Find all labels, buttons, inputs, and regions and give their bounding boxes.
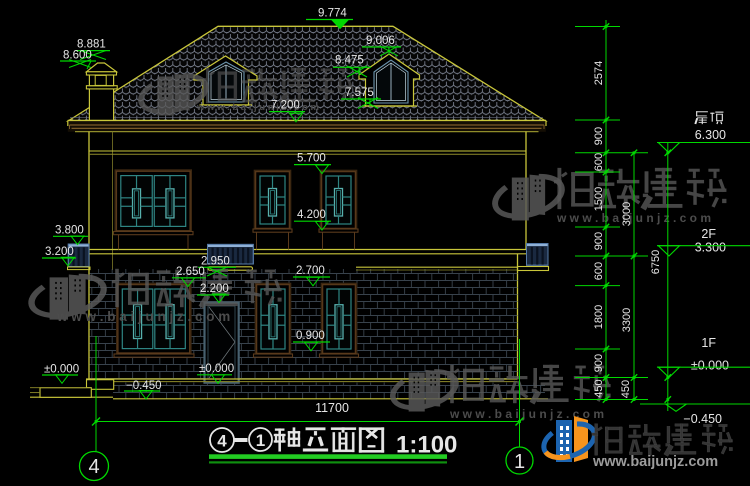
svg-text:9.006: 9.006 (366, 35, 395, 47)
svg-text:3300: 3300 (621, 308, 633, 332)
svg-text:6750: 6750 (650, 250, 662, 274)
svg-text:−0.450: −0.450 (683, 412, 722, 426)
svg-text:4: 4 (217, 432, 227, 451)
svg-text:w w w . b a i j u n j z . c o: w w w . b a i j u n j z . c o m (56, 309, 230, 324)
svg-text:5.700: 5.700 (297, 153, 326, 165)
svg-text:1500: 1500 (593, 187, 605, 211)
svg-text:1F: 1F (701, 336, 716, 350)
svg-text:6.300: 6.300 (695, 128, 726, 142)
svg-text:450: 450 (593, 379, 605, 397)
svg-text:11700: 11700 (315, 401, 349, 415)
svg-text:7.200: 7.200 (271, 100, 300, 112)
svg-text:3.300: 3.300 (695, 241, 726, 255)
svg-text:600: 600 (593, 153, 605, 171)
svg-text:1: 1 (256, 431, 265, 450)
svg-text:±0.000: ±0.000 (691, 359, 729, 373)
svg-text:±0.000: ±0.000 (199, 363, 234, 375)
svg-text:900: 900 (593, 354, 605, 372)
svg-text:8.475: 8.475 (335, 55, 364, 67)
svg-text:2F: 2F (701, 227, 716, 241)
svg-text:600: 600 (593, 262, 605, 280)
svg-text:1800: 1800 (593, 305, 605, 329)
svg-text:2.200: 2.200 (200, 283, 229, 295)
svg-text:3.800: 3.800 (55, 224, 84, 236)
svg-text:1: 1 (514, 451, 525, 473)
svg-text:900: 900 (593, 127, 605, 145)
svg-text:2.700: 2.700 (296, 265, 325, 277)
svg-text:3000: 3000 (621, 202, 633, 226)
svg-text:2574: 2574 (593, 61, 605, 85)
svg-text:900: 900 (593, 232, 605, 250)
svg-text:8.600: 8.600 (63, 49, 92, 61)
svg-text:7.575: 7.575 (345, 87, 374, 99)
svg-text:4.200: 4.200 (297, 209, 326, 221)
svg-text:2.650: 2.650 (176, 266, 205, 278)
svg-text:9.774: 9.774 (318, 8, 347, 20)
svg-text:www.baijunjz.com: www.baijunjz.com (592, 454, 718, 470)
svg-text:4: 4 (88, 456, 99, 478)
svg-text:2.950: 2.950 (201, 256, 230, 268)
svg-text:450: 450 (620, 380, 632, 398)
svg-text:±0.000: ±0.000 (44, 364, 79, 376)
svg-text:3.200: 3.200 (45, 246, 74, 258)
svg-text:0.900: 0.900 (296, 330, 325, 342)
